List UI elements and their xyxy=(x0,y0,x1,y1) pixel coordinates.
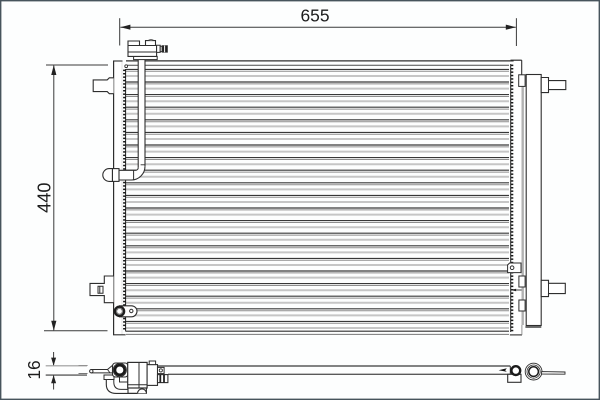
svg-text:16: 16 xyxy=(24,360,44,379)
svg-text:440: 440 xyxy=(34,183,54,213)
svg-text:655: 655 xyxy=(300,6,329,26)
